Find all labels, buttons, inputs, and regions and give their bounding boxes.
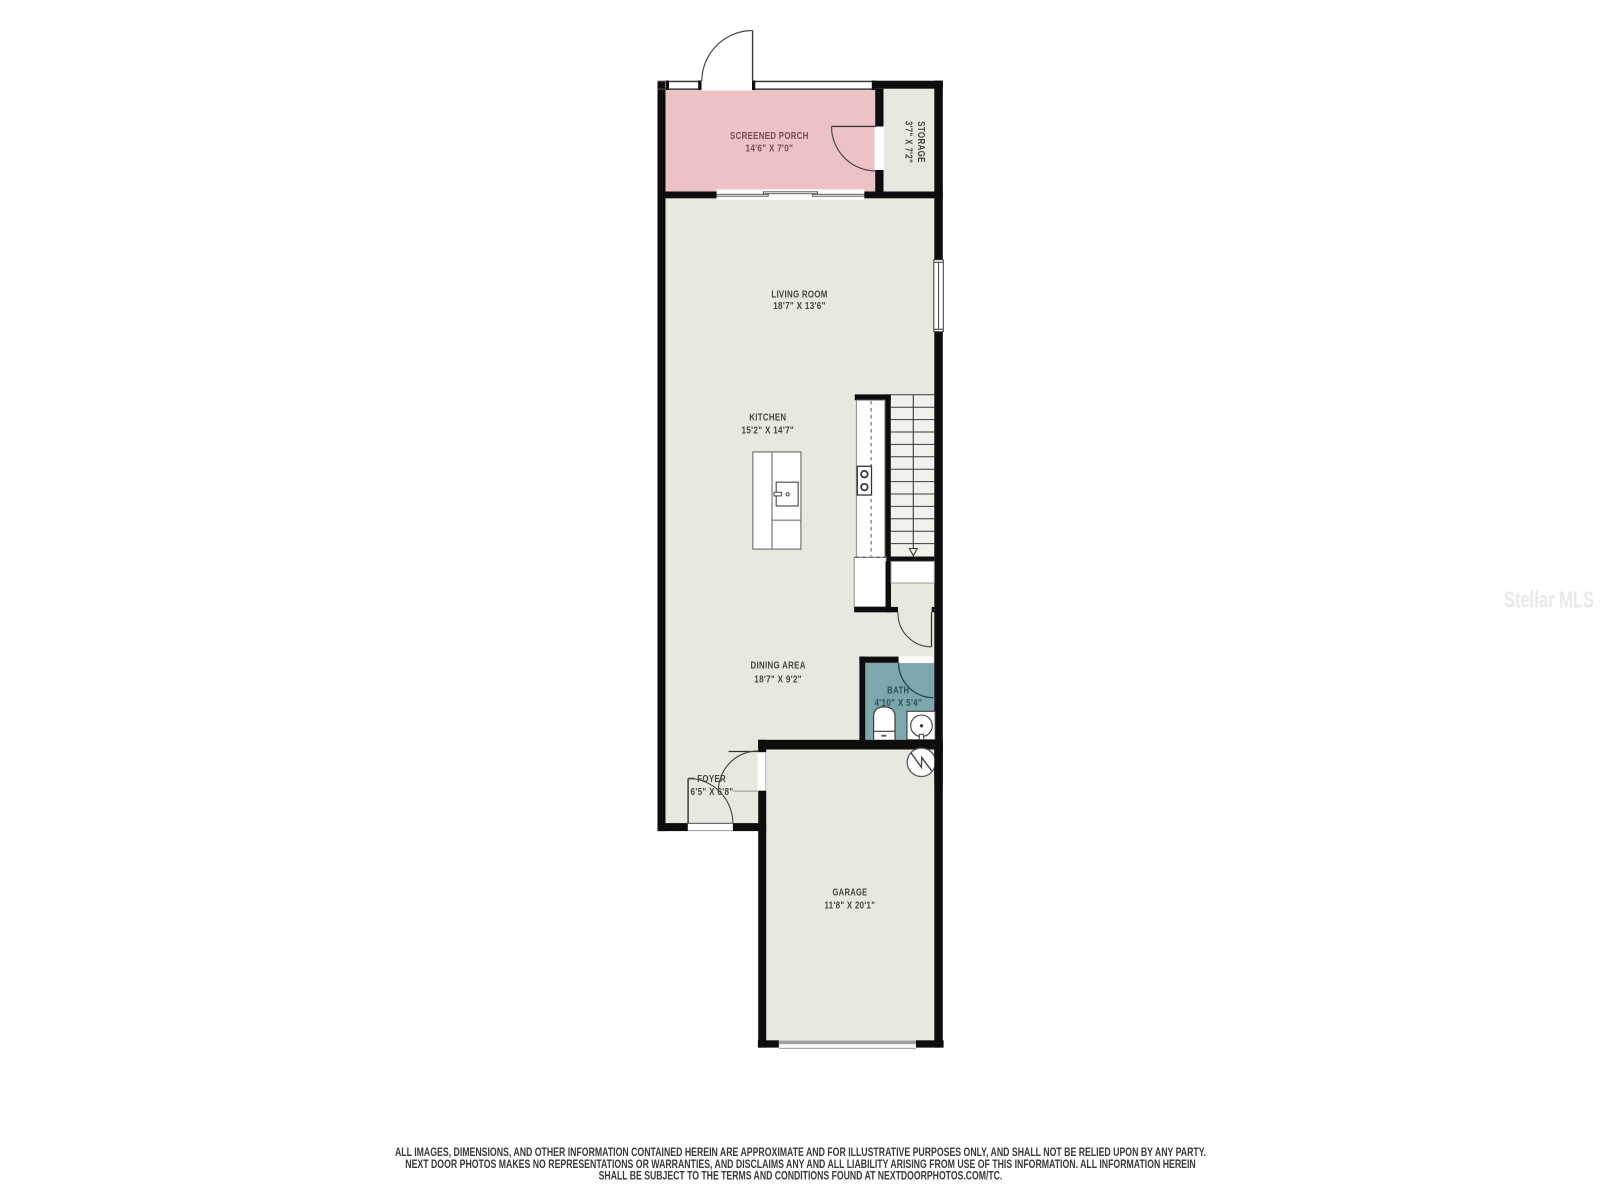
svg-text:SCREENED PORCH: SCREENED PORCH bbox=[730, 130, 809, 141]
svg-text:KITCHEN: KITCHEN bbox=[749, 411, 786, 422]
svg-text:6'5" X 6'8": 6'5" X 6'8" bbox=[691, 786, 734, 797]
svg-text:SHALL BE SUBJECT TO THE TERMS: SHALL BE SUBJECT TO THE TERMS AND CONDIT… bbox=[599, 1169, 1003, 1183]
svg-text:BATH: BATH bbox=[887, 685, 909, 696]
svg-text:GARAGE: GARAGE bbox=[832, 886, 867, 897]
svg-text:DINING AREA: DINING AREA bbox=[750, 660, 805, 671]
svg-text:11'8" X 20'1": 11'8" X 20'1" bbox=[825, 899, 876, 910]
svg-text:14'6" X 7'0": 14'6" X 7'0" bbox=[746, 142, 794, 153]
svg-text:18'7" X 13'6": 18'7" X 13'6" bbox=[773, 300, 826, 311]
svg-text:4'10" X 5'4": 4'10" X 5'4" bbox=[874, 697, 922, 708]
svg-text:LIVING ROOM: LIVING ROOM bbox=[771, 289, 827, 300]
svg-text:Stellar MLS: Stellar MLS bbox=[1504, 588, 1594, 613]
svg-text:15'2" X 14'7": 15'2" X 14'7" bbox=[742, 424, 795, 435]
svg-text:STORAGE3'7" X 7'2": STORAGE3'7" X 7'2" bbox=[903, 121, 927, 163]
svg-text:FOYER: FOYER bbox=[697, 773, 726, 784]
svg-text:18'7" X 9'2": 18'7" X 9'2" bbox=[754, 673, 802, 684]
